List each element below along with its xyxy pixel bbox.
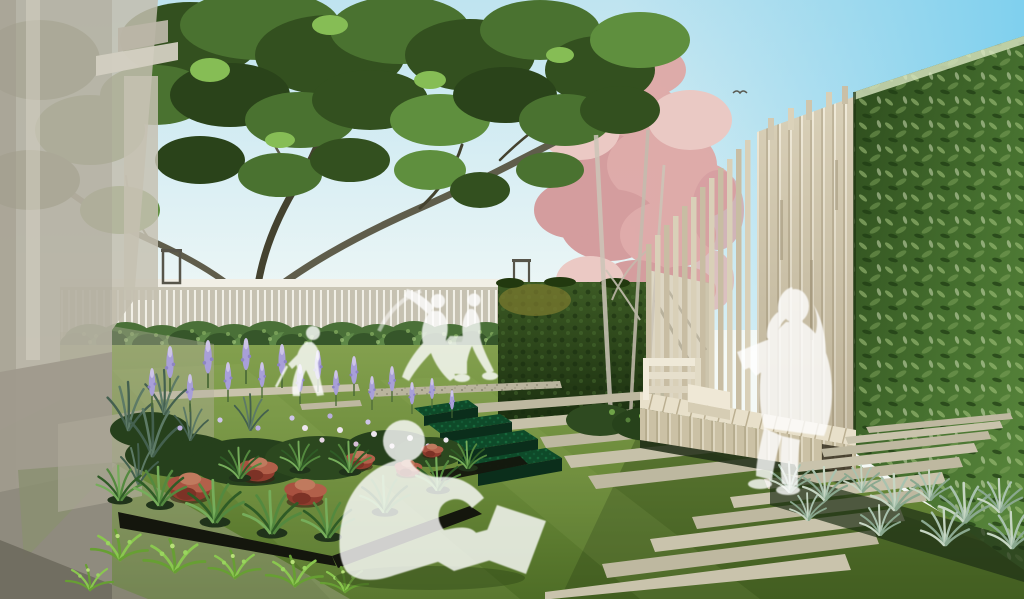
flower-dots-part (302, 425, 308, 431)
big-tree-canopy-part (580, 86, 660, 134)
person-sitting-on-grass-with-laptop-part (383, 420, 425, 462)
person-reading-on-bench-part (748, 479, 772, 489)
big-tree-canopy-part (546, 47, 574, 63)
garden-rendering-stage (0, 0, 1024, 599)
big-tree-canopy-part (310, 138, 390, 182)
big-tree-canopy-part (265, 132, 295, 148)
hedge-panel-part (496, 278, 524, 288)
groundcover-shrubs-part (609, 409, 615, 415)
timber-screen-stepped-slats-part (745, 140, 751, 436)
big-tree-canopy-part (312, 15, 348, 35)
flower-dots-part (365, 419, 370, 424)
big-tree-canopy-part (414, 71, 446, 89)
maple-tree-canopy-part (648, 90, 732, 150)
person-standing-left-part (306, 326, 320, 340)
person-reading-on-bench-part (776, 485, 800, 495)
big-tree-canopy-part (238, 153, 322, 197)
flower-dots-part (327, 413, 332, 418)
flower-dots-part (371, 431, 377, 437)
timber-screen-panel-part (810, 260, 813, 340)
person-at-small-table-part (482, 372, 498, 380)
maple-tree-canopy-part (534, 182, 606, 238)
hedge-panel-part (544, 277, 576, 287)
building-cornice-part (124, 76, 158, 300)
flower-dots-part (255, 425, 260, 430)
big-tree-canopy-part (155, 136, 245, 184)
timber-screen-panel-part (788, 108, 794, 130)
big-tree-canopy-part (190, 58, 230, 82)
timber-screen-panel-part (780, 200, 783, 260)
person-at-small-table-part (454, 374, 470, 382)
timber-screen-panel-part (806, 100, 812, 120)
garden-rendering (0, 0, 1024, 599)
flower-dots-part (177, 425, 182, 430)
person-walking-center-part (431, 294, 445, 308)
bench-backrest-part (643, 358, 649, 400)
flower-dots-part (443, 437, 448, 442)
flower-dots-part (217, 417, 222, 422)
bench-backrest-part (643, 358, 701, 366)
timber-screen-panel-part (835, 160, 838, 210)
person-reading-on-bench-part (781, 436, 801, 486)
flower-dots-part (337, 427, 343, 433)
timber-screen-panel-part (768, 118, 774, 140)
person-reading-on-bench-part (781, 289, 809, 323)
green-wall-part (853, 92, 856, 454)
flower-dots-part (289, 415, 294, 420)
person-at-small-table-part (468, 294, 481, 307)
bench-backrest-part (643, 372, 701, 379)
timber-screen-stepped-slats-part (736, 149, 742, 436)
flower-dots-part (319, 437, 324, 442)
big-tree-canopy-part (450, 172, 510, 208)
big-tree-canopy-part (516, 152, 584, 188)
timber-screen-panel-part (826, 92, 832, 112)
left-building-part (26, 0, 40, 360)
hedge-panel-part (499, 284, 571, 316)
timber-screen-panel-part (842, 86, 848, 104)
groundcover-shrubs-part (626, 418, 631, 423)
big-tree-canopy-part (590, 12, 690, 68)
